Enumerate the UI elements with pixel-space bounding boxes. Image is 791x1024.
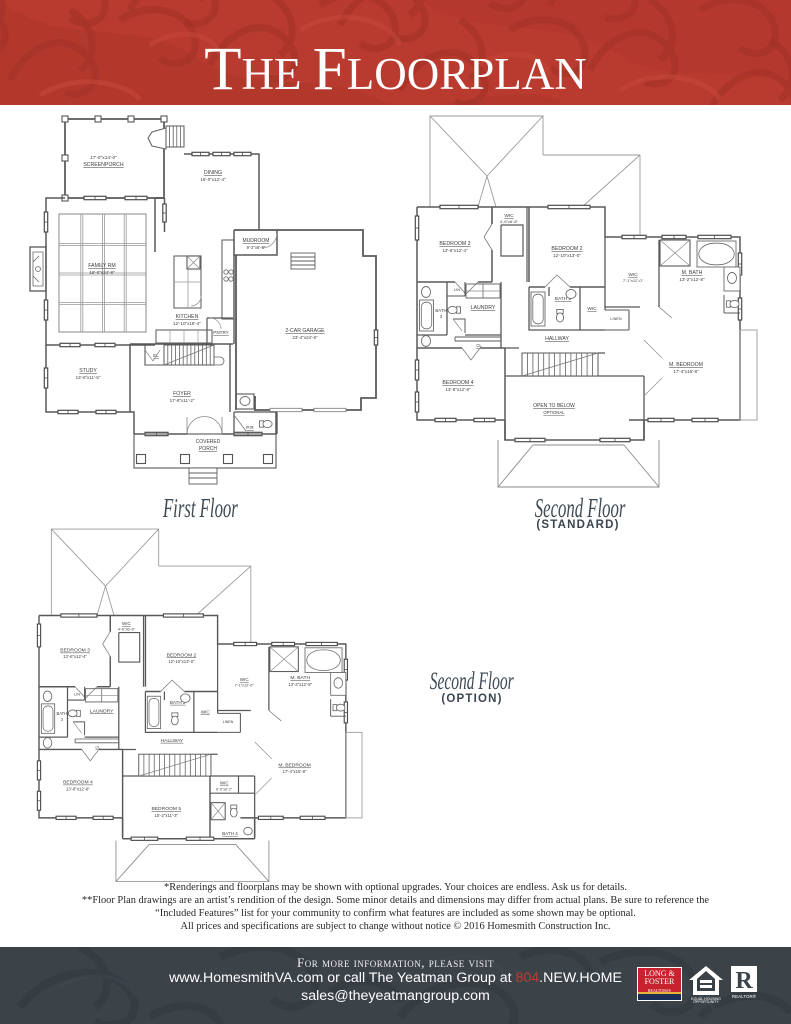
svg-text:WIC: WIC (240, 677, 250, 682)
svg-text:17'-0"x14'-0": 17'-0"x14'-0" (90, 155, 117, 161)
svg-text:16'-0"x24'-8": 16'-0"x24'-8" (89, 270, 115, 275)
svg-text:BEDROOM 2: BEDROOM 2 (551, 246, 582, 252)
svg-text:OPEN TO BELOW: OPEN TO BELOW (533, 403, 575, 409)
svg-text:LINEN: LINEN (610, 317, 621, 321)
svg-text:9'-2"x6'-8": 9'-2"x6'-8" (247, 245, 266, 250)
svg-text:REALTOR®: REALTOR® (732, 993, 757, 999)
svg-text:FOYER: FOYER (173, 391, 191, 397)
svg-text:17'-4"x15'-8": 17'-4"x15'-8" (673, 369, 699, 374)
svg-text:LINEN: LINEN (223, 720, 234, 724)
svg-text:SCREENPORCH: SCREENPORCH (83, 162, 124, 168)
svg-text:R: R (735, 968, 753, 994)
svg-text:4'-6"x6'-8": 4'-6"x6'-8" (500, 219, 519, 224)
svg-text:LAUNDRY: LAUNDRY (471, 305, 496, 311)
svg-text:3: 3 (61, 717, 64, 722)
svg-text:P.R: P.R (246, 425, 254, 431)
svg-text:13'-6"x12'-4": 13'-6"x12'-4" (442, 248, 468, 253)
svg-text:MUDROOM: MUDROOM (243, 238, 270, 244)
svg-text:M. BATH: M. BATH (682, 270, 703, 276)
svg-text:WIC: WIC (201, 709, 211, 714)
svg-text:7'-1"x12'-0": 7'-1"x12'-0" (235, 684, 255, 688)
svg-text:13'-6"x11'-5": 13'-6"x11'-5" (76, 375, 101, 380)
svg-text:PNTRY: PNTRY (213, 330, 229, 335)
svg-text:17'-4"x15'-8": 17'-4"x15'-8" (283, 769, 307, 774)
svg-text:LIN: LIN (74, 692, 80, 696)
svg-text:OPTIONAL: OPTIONAL (543, 410, 565, 415)
svg-text:COVERED: COVERED (196, 439, 221, 445)
svg-text:BEDROOM 2: BEDROOM 2 (167, 652, 197, 658)
svg-text:M. BEDROOM: M. BEDROOM (669, 362, 703, 368)
svg-text:3: 3 (440, 314, 443, 319)
svg-text:15'-2"x11'-3": 15'-2"x11'-3" (155, 813, 179, 818)
svg-text:BATH 4: BATH 4 (222, 831, 238, 836)
svg-text:M. BEDROOM: M. BEDROOM (278, 763, 310, 769)
svg-text:2-CAR GARAGE: 2-CAR GARAGE (285, 328, 325, 334)
svg-text:M. BATH: M. BATH (290, 675, 310, 681)
svg-text:HALLWAY: HALLWAY (545, 336, 569, 342)
svg-text:16'-0"x12'-4": 16'-0"x12'-4" (200, 177, 226, 182)
svg-text:BEDROOM 5: BEDROOM 5 (151, 806, 181, 812)
svg-text:STUDY: STUDY (79, 368, 97, 374)
svg-text:BEDROOM 3: BEDROOM 3 (60, 648, 90, 654)
svg-text:BEDROOM 4: BEDROOM 4 (63, 780, 93, 786)
svg-text:FAMILY RM: FAMILY RM (88, 263, 115, 269)
svg-text:LIN: LIN (454, 287, 460, 292)
svg-text:6'-0"x6'-2": 6'-0"x6'-2" (216, 787, 233, 791)
svg-text:13'-8"x12'-8": 13'-8"x12'-8" (66, 786, 90, 791)
svg-text:13'-2"x12'-8": 13'-2"x12'-8" (679, 277, 705, 282)
svg-text:WIC: WIC (122, 621, 132, 626)
svg-text:WIC: WIC (220, 781, 228, 786)
svg-text:7'-1"x12'-0": 7'-1"x12'-0" (623, 278, 644, 283)
svg-text:BATH: BATH (57, 711, 68, 716)
svg-text:17'-8"x11'-2": 17'-8"x11'-2" (170, 398, 195, 403)
svg-text:12'-10"x16'-4": 12'-10"x16'-4" (173, 321, 201, 326)
svg-text:WIC: WIC (587, 306, 597, 312)
svg-text:HALLWAY: HALLWAY (161, 738, 184, 744)
svg-text:LAUNDRY: LAUNDRY (90, 708, 114, 714)
svg-text:BEDROOM 4: BEDROOM 4 (442, 380, 473, 386)
svg-text:13'-6"x12'-4": 13'-6"x12'-4" (63, 654, 87, 659)
svg-text:KITCHEN: KITCHEN (176, 314, 199, 320)
svg-text:OPPORTUNITY: OPPORTUNITY (693, 1000, 719, 1003)
svg-text:12'-10"x13'-0": 12'-10"x13'-0" (168, 659, 195, 664)
svg-text:BEDROOM 3: BEDROOM 3 (439, 241, 470, 247)
svg-text:DINING: DINING (204, 170, 222, 176)
svg-text:13'-8"x12'-8": 13'-8"x12'-8" (445, 387, 471, 392)
svg-text:BATH: BATH (435, 308, 446, 313)
svg-text:PORCH: PORCH (199, 446, 217, 452)
svg-text:12'-10"x13'-0": 12'-10"x13'-0" (553, 253, 581, 258)
svg-text:13'-2"x12'-8": 13'-2"x12'-8" (288, 682, 312, 687)
svg-text:23'-4"x24'-8": 23'-4"x24'-8" (292, 335, 318, 340)
svg-text:4'-6"x6'-8": 4'-6"x6'-8" (118, 628, 136, 632)
